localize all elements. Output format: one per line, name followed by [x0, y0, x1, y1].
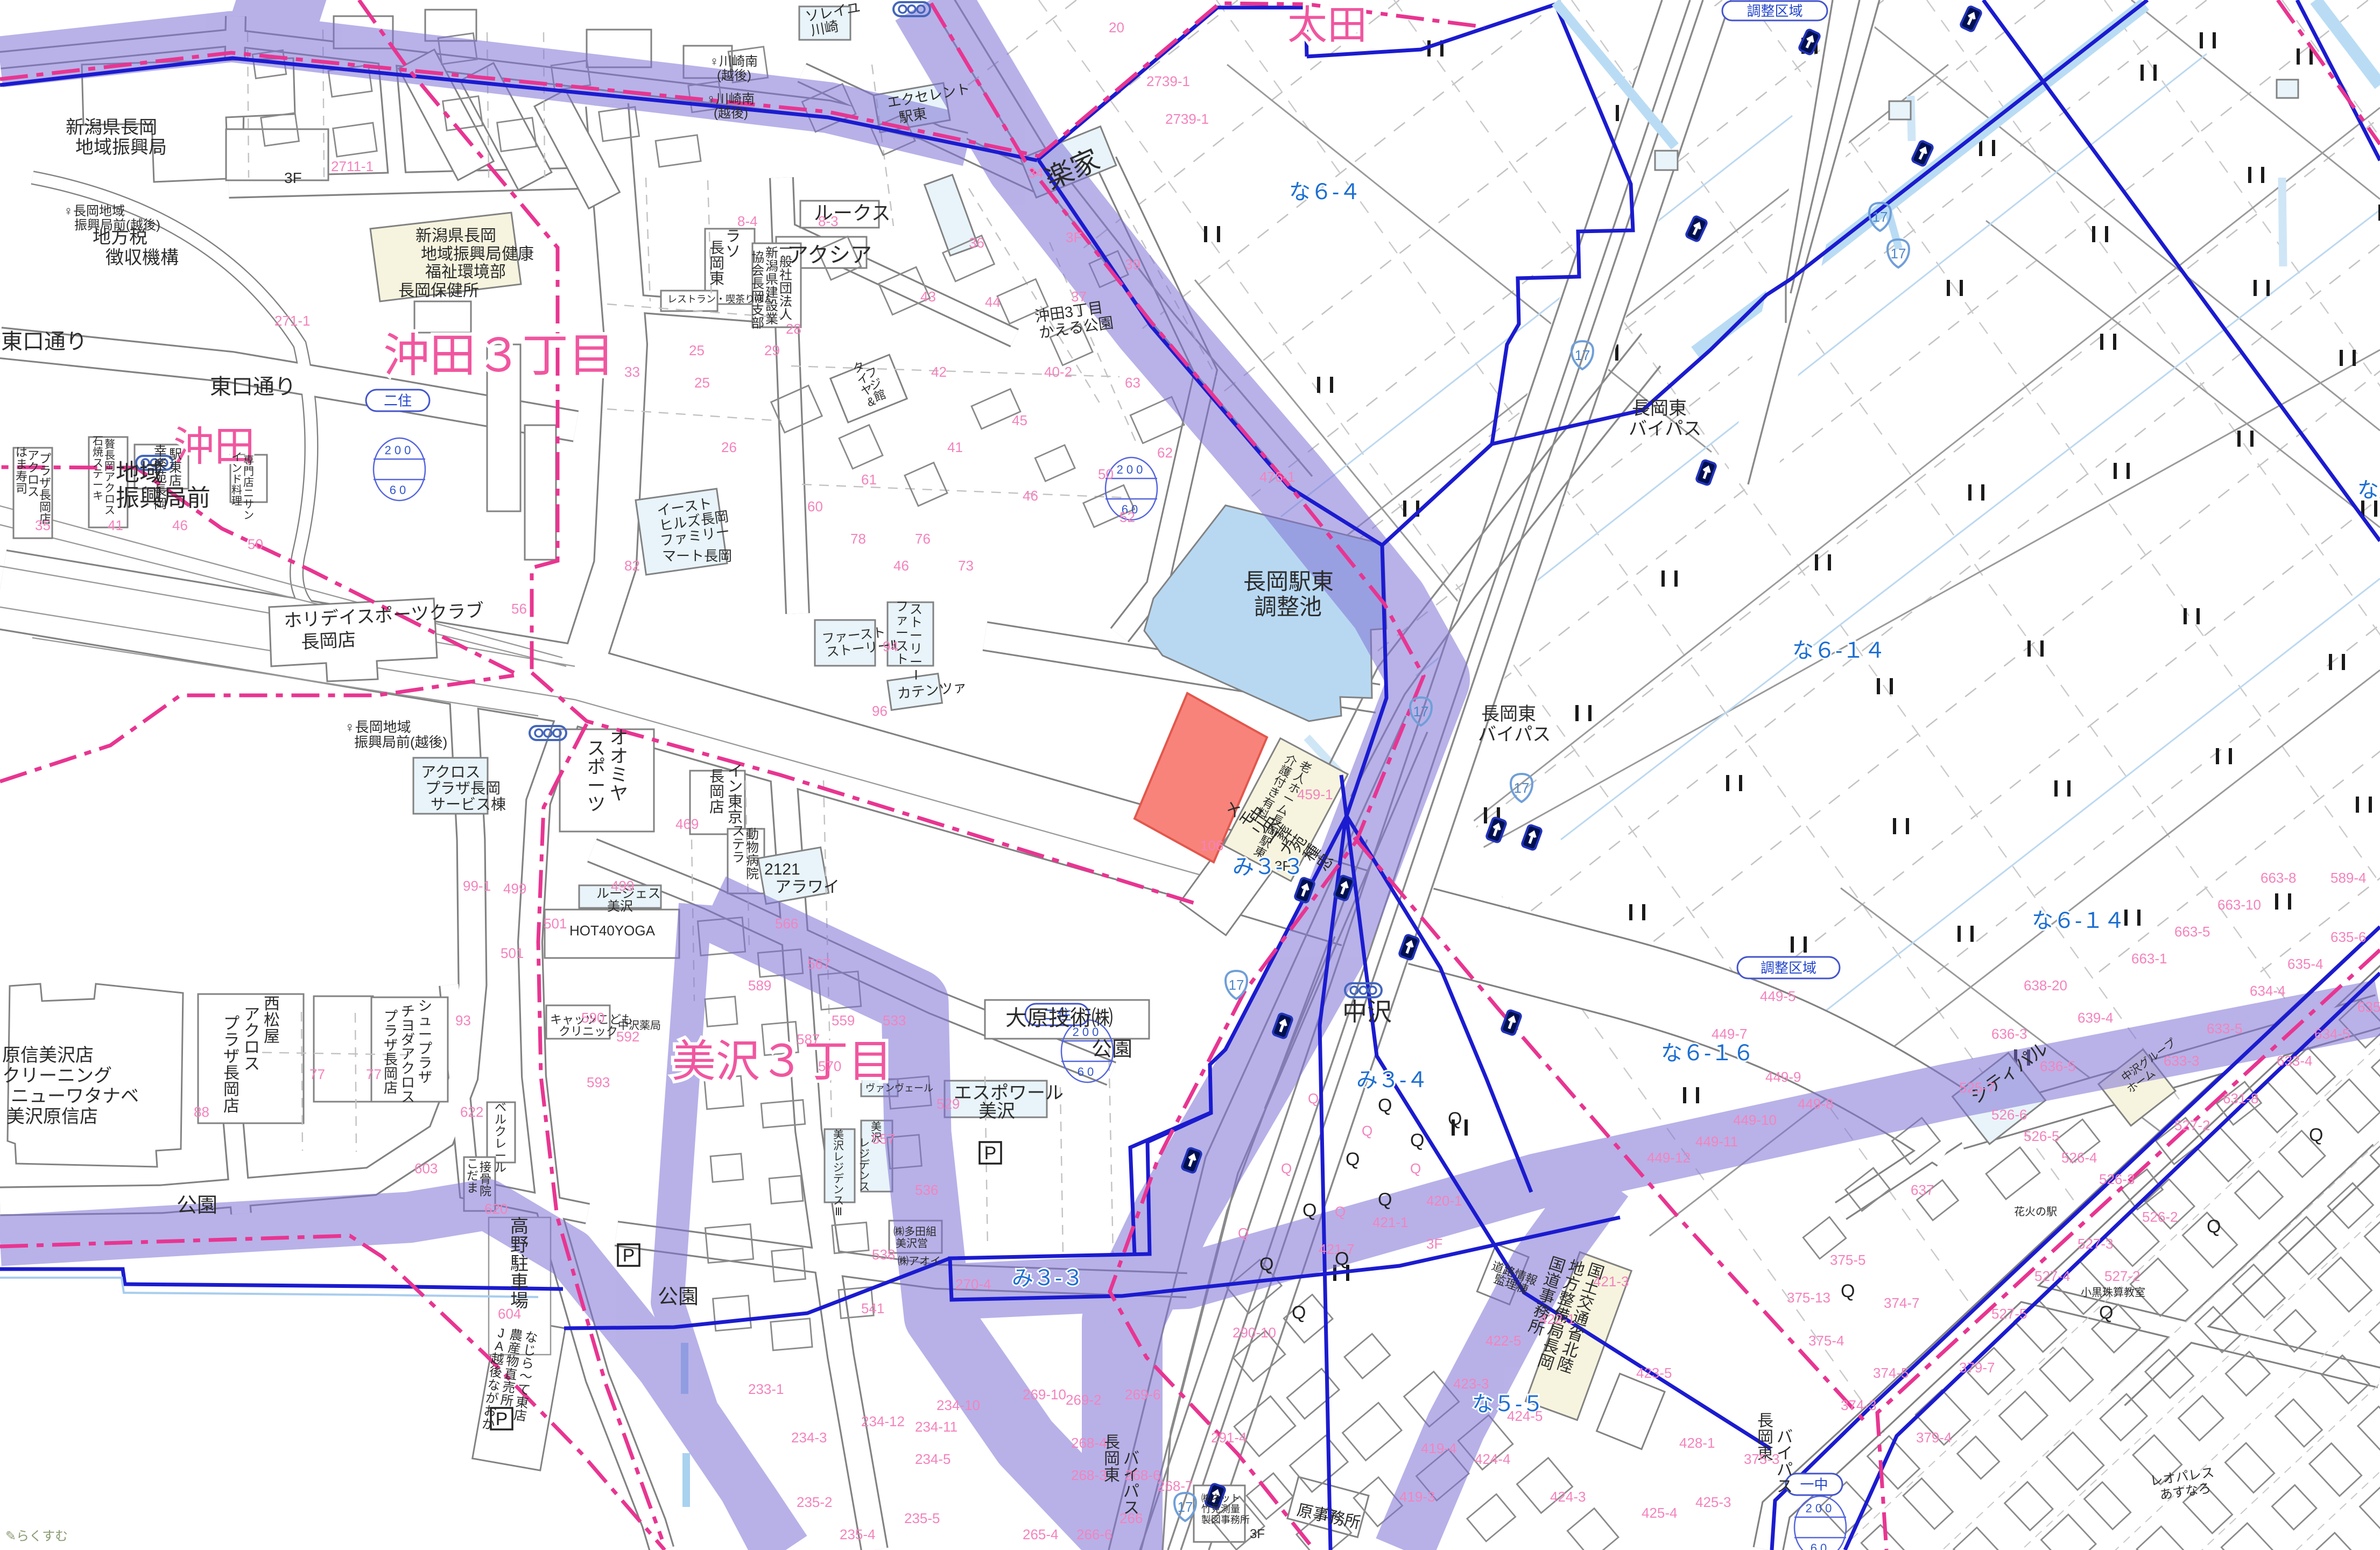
svg-text:634-5: 634-5: [2314, 1026, 2350, 1042]
svg-text:635-5: 635-5: [2357, 999, 2380, 1015]
svg-text:270-4: 270-4: [955, 1276, 991, 1292]
svg-text:375-3: 375-3: [1744, 1451, 1780, 1467]
svg-text:35: 35: [35, 517, 51, 533]
svg-text:43: 43: [920, 288, 936, 305]
svg-text:製図事務所: 製図事務所: [1201, 1514, 1250, 1525]
svg-text:421-3: 421-3: [1593, 1273, 1629, 1290]
svg-text:663-8: 663-8: [2261, 870, 2297, 886]
svg-text:526-4: 526-4: [2061, 1150, 2097, 1166]
svg-text:協会長岡支部: 協会長岡支部: [751, 250, 764, 330]
svg-text:525-7: 525-7: [1959, 1080, 1995, 1096]
svg-text:シュープラザ: シュープラザ: [418, 998, 432, 1086]
svg-text:63: 63: [1125, 375, 1140, 391]
svg-text:調整区域: 調整区域: [1747, 3, 1802, 19]
svg-text:41: 41: [108, 517, 123, 533]
svg-text:東口通り: 東口通り: [210, 375, 296, 399]
svg-text:88: 88: [194, 1104, 209, 1120]
svg-text:37: 37: [1071, 288, 1087, 305]
svg-text:29: 29: [764, 342, 780, 358]
svg-text:422-1: 422-1: [1539, 1311, 1575, 1327]
svg-text:東口通り: 東口通り: [1, 330, 87, 354]
svg-text:268-7: 268-7: [1157, 1478, 1193, 1494]
svg-text:636-3: 636-3: [1991, 1026, 2027, 1042]
svg-text:566: 566: [775, 915, 798, 932]
svg-text:449-5: 449-5: [1760, 988, 1796, 1004]
svg-text:61: 61: [861, 471, 877, 488]
svg-text:633-3: 633-3: [2164, 1053, 2200, 1069]
svg-text:77: 77: [309, 1066, 325, 1082]
svg-text:76: 76: [915, 531, 931, 547]
svg-text:28: 28: [786, 321, 801, 337]
svg-text:太田: 太田: [1287, 3, 1367, 47]
svg-text:8-4: 8-4: [737, 213, 758, 229]
svg-text:269-2: 269-2: [1066, 1392, 1102, 1408]
svg-text:な６-１４: な６-１４: [1792, 639, 1885, 663]
svg-text:234-11: 234-11: [915, 1419, 957, 1435]
svg-text:40-2: 40-2: [1044, 364, 1072, 380]
svg-text:福祉環境部: 福祉環境部: [425, 263, 506, 281]
svg-text:美沢原信店: 美沢原信店: [6, 1107, 98, 1127]
svg-text:34: 34: [1028, 165, 1044, 181]
svg-text:46: 46: [893, 558, 909, 574]
svg-text:専門店ニサン: 専門店ニサン: [243, 454, 254, 522]
svg-text:Q: Q: [1302, 1200, 1316, 1221]
svg-text:こだま: こだま: [467, 1157, 478, 1195]
svg-text:526-6: 526-6: [1991, 1107, 2027, 1123]
svg-text:Q: Q: [1410, 1130, 1424, 1151]
svg-text:クリニック: クリニック: [559, 1025, 618, 1038]
svg-text:93: 93: [455, 1012, 471, 1028]
svg-text:美沢３丁目: 美沢３丁目: [672, 1037, 892, 1086]
svg-text:234-10: 234-10: [936, 1397, 980, 1413]
svg-text:375-5: 375-5: [1830, 1252, 1866, 1268]
svg-text:3F: 3F: [1250, 1527, 1265, 1541]
svg-text:(越後): (越後): [717, 68, 751, 83]
svg-text:エスポワール: エスポワール: [954, 1083, 1064, 1103]
svg-text:449-12: 449-12: [1647, 1150, 1691, 1166]
svg-text:プラザ長岡店: プラザ長岡店: [223, 1015, 240, 1115]
svg-text:62: 62: [1157, 445, 1173, 461]
svg-text:526-3: 526-3: [2099, 1171, 2135, 1187]
svg-text:Q: Q: [1841, 1281, 1855, 1301]
svg-text:638-20: 638-20: [2024, 977, 2067, 994]
svg-text:ラソ: ラソ: [726, 228, 741, 260]
svg-text:スポーツ: スポーツ: [587, 738, 605, 815]
svg-text:な６-１４: な６-１４: [2032, 909, 2125, 933]
svg-text:マート長岡: マート長岡: [662, 548, 732, 564]
svg-text:46: 46: [1023, 488, 1038, 504]
svg-text:振興局前(越後): 振興局前(越後): [74, 218, 160, 232]
svg-text:235-2: 235-2: [797, 1494, 833, 1510]
svg-text:269-6: 269-6: [1125, 1386, 1161, 1403]
svg-text:423-3: 423-3: [1453, 1376, 1489, 1392]
svg-text:ステラ: ステラ: [732, 824, 745, 865]
svg-text:♀長岡地域: ♀長岡地域: [64, 204, 125, 219]
svg-text:44: 44: [985, 294, 1001, 310]
svg-text:476-1: 476-1: [1259, 469, 1295, 485]
svg-text:527-4: 527-4: [2034, 1268, 2071, 1284]
svg-text:チヨダアクロス: チヨダアクロス: [401, 1003, 415, 1105]
svg-text:56: 56: [511, 601, 527, 617]
svg-text:花火の駅: 花火の駅: [2014, 1206, 2057, 1218]
svg-text:㈱多田組: ㈱多田組: [893, 1225, 936, 1238]
svg-text:美沢レジデンスⅢ: 美沢レジデンスⅢ: [833, 1129, 844, 1218]
svg-text:アクロス: アクロス: [244, 1006, 260, 1073]
svg-text:な６-１６: な６-１６: [1661, 1041, 1754, 1065]
svg-text:233-1: 233-1: [748, 1381, 784, 1397]
svg-text:み３-４: み３-４: [1356, 1068, 1428, 1092]
svg-text:567: 567: [807, 956, 830, 972]
svg-text:449-7: 449-7: [1712, 1026, 1748, 1042]
svg-text:♀長岡地域: ♀長岡地域: [344, 719, 411, 735]
svg-text:375-4: 375-4: [1808, 1333, 1844, 1349]
svg-text:46: 46: [172, 517, 188, 533]
svg-text:421-1: 421-1: [1372, 1214, 1409, 1230]
svg-text:長岡東: 長岡東: [709, 239, 724, 287]
svg-text:234-12: 234-12: [861, 1413, 905, 1429]
svg-text:78: 78: [850, 531, 866, 547]
svg-text:美沢営: 美沢営: [896, 1237, 928, 1250]
svg-text:長岡店: 長岡店: [709, 768, 724, 815]
svg-text:Q: Q: [1238, 1225, 1249, 1241]
svg-text:原信美沢店: 原信美沢店: [2, 1045, 94, 1066]
svg-text:アラワイ: アラワイ: [775, 878, 840, 896]
svg-text:はま寿司: はま寿司: [16, 446, 27, 495]
svg-text:633-5: 633-5: [2207, 1020, 2243, 1037]
svg-text:3F: 3F: [1426, 1236, 1442, 1252]
svg-text:635-6: 635-6: [2330, 929, 2367, 945]
svg-text:一中: 一中: [1800, 1476, 1828, 1492]
svg-text:Q: Q: [1362, 1123, 1372, 1139]
svg-text:中沢: 中沢: [1342, 998, 1392, 1026]
svg-text:サービス棟: サービス棟: [431, 796, 506, 813]
svg-text:106: 106: [1200, 837, 1223, 854]
svg-text:592: 592: [616, 1028, 639, 1045]
svg-text:調整区域: 調整区域: [1761, 960, 1816, 976]
svg-text:42: 42: [931, 364, 947, 380]
svg-text:ベルクレール: ベルクレール: [495, 1101, 506, 1174]
svg-text:449-8: 449-8: [1798, 1096, 1834, 1112]
svg-text:(越後): (越後): [714, 106, 748, 121]
svg-text:公園: 公園: [177, 1194, 217, 1217]
svg-text:クリーニング: クリーニング: [2, 1066, 112, 1086]
svg-text:374-3: 374-3: [1841, 1397, 1877, 1413]
svg-text:2121: 2121: [764, 861, 800, 878]
svg-text:アクシア: アクシア: [787, 243, 872, 267]
svg-text:268-3: 268-3: [1071, 1467, 1107, 1483]
svg-text:長岡東: 長岡東: [1632, 398, 1687, 419]
svg-text:な６-: な６-: [2357, 478, 2380, 502]
svg-text:Q: Q: [2309, 1125, 2323, 1145]
svg-text:622: 622: [460, 1104, 483, 1120]
svg-text:プラザ長岡: プラザ長岡: [425, 780, 501, 797]
svg-text:一般社団法人: 一般社団法人: [779, 242, 792, 322]
svg-text:公園: 公園: [1092, 1038, 1132, 1061]
svg-text:39: 39: [1125, 256, 1140, 272]
svg-text:接骨院: 接骨院: [480, 1160, 491, 1198]
svg-text:2711-1: 2711-1: [331, 158, 374, 174]
svg-text:25: 25: [689, 342, 705, 358]
svg-text:バイパス: バイパス: [1123, 1450, 1139, 1517]
svg-text:234-5: 234-5: [915, 1451, 951, 1467]
svg-text:634-4: 634-4: [2250, 983, 2286, 999]
svg-text:593: 593: [587, 1074, 610, 1090]
svg-text:アクロス: アクロス: [421, 764, 481, 780]
svg-text:バイパス: バイパス: [1478, 724, 1551, 745]
svg-text:㈱アオイ: ㈱アオイ: [898, 1255, 941, 1267]
svg-text:663-1: 663-1: [2131, 950, 2167, 967]
svg-text:424-5: 424-5: [1507, 1408, 1543, 1424]
svg-text:Q: Q: [2207, 1216, 2221, 1237]
svg-text:635-4: 635-4: [2287, 956, 2323, 972]
svg-text:589: 589: [748, 977, 771, 994]
svg-text:贅長岡アクロス: 贅長岡アクロス: [104, 438, 115, 516]
svg-text:60: 60: [807, 498, 823, 515]
svg-text:み３-３: み３-３: [1233, 855, 1304, 879]
svg-text:419-3: 419-3: [1399, 1489, 1435, 1505]
svg-text:美沢: 美沢: [978, 1101, 1015, 1122]
svg-text:み３-３: み３-３: [1012, 1266, 1083, 1290]
svg-text:425-3: 425-3: [1695, 1494, 1731, 1510]
svg-text:604: 604: [498, 1306, 521, 1322]
svg-text:449-11: 449-11: [1695, 1133, 1738, 1150]
svg-text:Q: Q: [1259, 1254, 1273, 1274]
svg-text:高野駐車場: 高野駐車場: [510, 1216, 529, 1312]
svg-text:265-4: 265-4: [1023, 1526, 1059, 1542]
svg-text:449-9: 449-9: [1765, 1069, 1801, 1085]
svg-text:633-4: 633-4: [2277, 1053, 2313, 1069]
svg-text:271-1: 271-1: [274, 313, 311, 329]
svg-text:73: 73: [958, 558, 974, 574]
svg-text:8-3: 8-3: [818, 213, 839, 229]
svg-text:✎らくすむ: ✎らくすむ: [5, 1529, 68, 1544]
svg-text:375-13: 375-13: [1787, 1290, 1830, 1306]
svg-text:25: 25: [694, 375, 710, 391]
svg-text:Q: Q: [1346, 1149, 1360, 1169]
svg-text:449-10: 449-10: [1733, 1112, 1777, 1128]
svg-text:プラザ長岡店: プラザ長岡店: [384, 1009, 398, 1096]
svg-text:Q: Q: [1335, 1249, 1349, 1269]
svg-text:Q: Q: [1335, 1203, 1346, 1220]
svg-text:424-3: 424-3: [1550, 1489, 1586, 1505]
svg-text:西松屋: 西松屋: [264, 995, 280, 1046]
svg-text:ニューワタナベ: ニューワタナベ: [11, 1086, 139, 1107]
svg-text:589-4: 589-4: [2330, 870, 2367, 886]
svg-text:36: 36: [969, 235, 984, 251]
svg-text:268-4: 268-4: [1071, 1435, 1107, 1451]
svg-text:幸楽苑長岡: 幸楽苑長岡: [154, 444, 167, 511]
svg-text:Q: Q: [1378, 1189, 1392, 1210]
svg-text:動物病院: 動物病院: [746, 827, 759, 881]
svg-text:235-4: 235-4: [840, 1526, 876, 1542]
svg-text:268-6: 268-6: [1125, 1467, 1161, 1483]
svg-text:269-10: 269-10: [1023, 1386, 1066, 1403]
svg-text:Q: Q: [1410, 1160, 1421, 1176]
svg-text:235-5: 235-5: [904, 1510, 940, 1526]
svg-text:423-5: 423-5: [1636, 1365, 1672, 1381]
svg-text:45: 45: [1012, 412, 1027, 428]
svg-text:469: 469: [675, 816, 699, 832]
svg-text:290-10: 290-10: [1233, 1324, 1276, 1341]
svg-text:レジデンス: レジデンス: [859, 1137, 870, 1193]
svg-text:501: 501: [544, 915, 567, 932]
svg-text:538: 538: [872, 1246, 895, 1263]
svg-text:20: 20: [1109, 19, 1124, 36]
svg-text:428-1: 428-1: [1679, 1435, 1715, 1451]
svg-text:イン東京: イン東京: [728, 763, 743, 826]
svg-text:82: 82: [624, 558, 640, 574]
svg-text:499: 499: [503, 880, 526, 897]
svg-text:長岡駅東: 長岡駅東: [1243, 569, 1334, 594]
svg-text:沖田３丁目: 沖田３丁目: [383, 330, 615, 382]
svg-text:636-5: 636-5: [2040, 1058, 2076, 1074]
svg-text:527-2: 527-2: [2174, 1117, 2210, 1133]
svg-text:379-7: 379-7: [1959, 1359, 1995, 1376]
svg-text:2739-1: 2739-1: [1165, 111, 1209, 127]
svg-text:374-7: 374-7: [1884, 1295, 1920, 1311]
svg-text:603: 603: [414, 1160, 438, 1176]
svg-text:インド料理: インド料理: [231, 452, 242, 508]
svg-text:2739-1: 2739-1: [1146, 73, 1190, 89]
svg-text:レストラン・喫茶りぼん: レストラン・喫茶りぼん: [667, 294, 774, 305]
svg-text:50: 50: [1098, 466, 1114, 482]
svg-text:587: 587: [797, 1031, 820, 1047]
svg-text:631-8: 631-8: [2223, 1090, 2259, 1107]
svg-text:536: 536: [915, 1182, 938, 1198]
svg-text:地域振興局: 地域振興局: [75, 137, 167, 158]
svg-text:公園: 公園: [658, 1286, 699, 1308]
svg-text:Q: Q: [1378, 1095, 1392, 1116]
svg-text:526-5: 526-5: [2024, 1128, 2060, 1144]
svg-text:Q: Q: [1308, 1090, 1319, 1107]
svg-text:379-4: 379-4: [1916, 1429, 1952, 1446]
svg-text:663-5: 663-5: [2174, 924, 2210, 940]
svg-text:96: 96: [872, 703, 888, 719]
svg-text:637: 637: [1911, 1182, 1934, 1198]
svg-text:アクロス: アクロス: [27, 449, 39, 498]
svg-text:ヴァンヴェール: ヴァンヴェール: [865, 1083, 933, 1094]
svg-text:527-3: 527-3: [2078, 1236, 2114, 1252]
svg-text:竹見測量: 竹見測量: [1201, 1504, 1240, 1514]
svg-text:425-4: 425-4: [1642, 1505, 1678, 1521]
svg-text:419-4: 419-4: [1421, 1440, 1457, 1456]
svg-text:♀川崎南: ♀川崎南: [706, 92, 755, 107]
svg-text:420-1: 420-1: [1426, 1193, 1462, 1209]
svg-text:長岡保健所: 長岡保健所: [398, 282, 479, 300]
svg-text:590: 590: [581, 1010, 604, 1026]
svg-text:長岡東: 長岡東: [1481, 704, 1536, 724]
svg-text:50: 50: [248, 536, 263, 552]
svg-text:620: 620: [484, 1201, 508, 1217]
svg-text:美沢: 美沢: [607, 899, 633, 914]
svg-text:526-2: 526-2: [2142, 1209, 2178, 1225]
svg-text:バイパス: バイパス: [1629, 419, 1701, 439]
svg-text:570: 570: [818, 1058, 841, 1074]
svg-text:266: 266: [1119, 1510, 1143, 1526]
svg-text:94: 94: [883, 638, 898, 654]
svg-text:HOT40YOGA: HOT40YOGA: [569, 922, 656, 939]
svg-text:99-1: 99-1: [463, 878, 491, 894]
svg-text:559: 559: [832, 1012, 855, 1028]
svg-text:26: 26: [721, 439, 737, 455]
svg-text:Q: Q: [2099, 1302, 2113, 1323]
svg-text:374-5: 374-5: [1873, 1365, 1909, 1381]
svg-text:77: 77: [366, 1066, 382, 1082]
svg-text:499: 499: [611, 878, 634, 894]
svg-text:266-6: 266-6: [1076, 1526, 1112, 1542]
svg-text:ファースト: ファースト: [896, 600, 909, 667]
svg-text:3F: 3F: [284, 170, 302, 186]
svg-text:二住: 二住: [384, 392, 412, 408]
svg-text:527-5: 527-5: [1991, 1306, 2027, 1322]
svg-text:33: 33: [624, 364, 640, 380]
svg-text:石焼ステーキ: 石焼ステーキ: [93, 435, 103, 502]
svg-text:大原技術㈱: 大原技術㈱: [1005, 1006, 1113, 1030]
svg-text:オオミヤ: オオミヤ: [610, 728, 628, 804]
svg-text:Q: Q: [1281, 1160, 1292, 1176]
svg-text:Q: Q: [1292, 1302, 1306, 1323]
svg-text:振興局前(越後): 振興局前(越後): [354, 734, 447, 750]
svg-text:♀川崎南: ♀川崎南: [709, 54, 758, 69]
svg-text:3F: 3F: [1066, 229, 1082, 245]
svg-text:小黒珠算教室: 小黒珠算教室: [2081, 1286, 2145, 1299]
svg-text:529: 529: [936, 1096, 960, 1112]
svg-text:新潟県建設業: 新潟県建設業: [765, 246, 778, 326]
svg-text:422-5: 422-5: [1485, 1333, 1522, 1349]
svg-text:プラザ長岡店: プラザ長岡店: [39, 452, 51, 526]
svg-text:639-4: 639-4: [2078, 1010, 2114, 1026]
svg-text:地域振興局健康: 地域振興局健康: [421, 245, 534, 263]
svg-text:Q: Q: [1448, 1109, 1462, 1129]
svg-text:長岡店: 長岡店: [300, 630, 356, 653]
svg-text:な６-４: な６-４: [1289, 180, 1361, 204]
svg-text:52: 52: [1119, 509, 1135, 525]
svg-text:424-4: 424-4: [1475, 1451, 1511, 1467]
svg-text:41: 41: [947, 439, 963, 455]
svg-text:527-2: 527-2: [2104, 1268, 2140, 1284]
svg-text:541: 541: [861, 1300, 884, 1316]
svg-text:徴収機構: 徴収機構: [105, 248, 179, 268]
svg-text:557: 557: [872, 1131, 895, 1147]
svg-text:663-10: 663-10: [2217, 897, 2261, 913]
svg-text:234-3: 234-3: [791, 1429, 827, 1446]
svg-text:501: 501: [501, 945, 524, 961]
svg-text:駅東店: 駅東店: [169, 447, 182, 488]
svg-text:新潟県長岡: 新潟県長岡: [416, 227, 496, 245]
svg-text:533: 533: [883, 1012, 906, 1028]
svg-text:調整池: 調整池: [1254, 594, 1322, 619]
svg-text:㈱ネット: ㈱ネット: [1201, 1493, 1240, 1504]
svg-text:新潟県長岡: 新潟県長岡: [66, 117, 157, 138]
svg-text:459-1: 459-1: [1297, 786, 1333, 802]
svg-text:291-4: 291-4: [1211, 1429, 1247, 1446]
